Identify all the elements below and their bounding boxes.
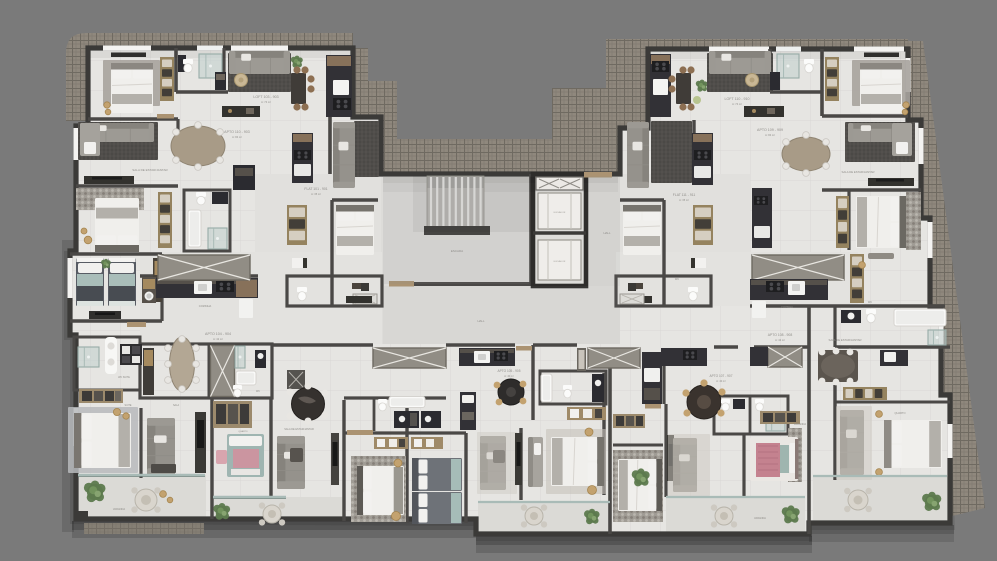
svg-text:APTO 110 - 903: APTO 110 - 903	[224, 130, 250, 134]
svg-text:FLAT 101 - 901: FLAT 101 - 901	[304, 187, 327, 191]
svg-text:A: 42 m²: A: 42 m²	[213, 337, 223, 341]
svg-text:A: 35 m²: A: 35 m²	[679, 198, 689, 202]
svg-text:A: 84 m²: A: 84 m²	[765, 133, 775, 137]
svg-text:WC SUITE: WC SUITE	[118, 376, 130, 379]
svg-text:SALA DE ESTAR/JANTAR: SALA DE ESTAR/JANTAR	[841, 170, 874, 174]
svg-text:FLAT 111 - 911: FLAT 111 - 911	[673, 193, 696, 197]
svg-text:A: 35 m²: A: 35 m²	[311, 192, 321, 196]
svg-text:WC: WC	[675, 278, 679, 281]
svg-text:WC: WC	[868, 301, 872, 304]
svg-text:QUARTO: QUARTO	[238, 430, 248, 433]
svg-text:WC: WC	[256, 390, 260, 393]
svg-text:APTO 107 - 907: APTO 107 - 907	[710, 374, 733, 378]
svg-text:A: 40 m²: A: 40 m²	[504, 375, 514, 378]
svg-text:ELEVADOR: ELEVADOR	[554, 260, 566, 263]
svg-text:ELEVADOR: ELEVADOR	[554, 211, 566, 214]
svg-text:SALA DE ESTAR/JANTAR: SALA DE ESTAR/JANTAR	[828, 338, 861, 342]
svg-text:APTO 105 - 905: APTO 105 - 905	[498, 369, 521, 373]
svg-text:LOFT 110 - 910: LOFT 110 - 910	[724, 97, 749, 101]
svg-text:VARANDA: VARANDA	[794, 422, 807, 426]
svg-text:LOFT 103 - 903: LOFT 103 - 903	[253, 95, 278, 99]
svg-text:A: 42 m²: A: 42 m²	[775, 338, 785, 342]
svg-text:A: 74 m²: A: 74 m²	[732, 102, 742, 106]
svg-text:HALL: HALL	[478, 319, 485, 323]
svg-text:A: 84 m²: A: 84 m²	[232, 135, 242, 139]
svg-text:A: 40 m²: A: 40 m²	[716, 380, 726, 383]
svg-text:QUARTO: QUARTO	[894, 411, 905, 415]
svg-text:APTO 104 - 904: APTO 104 - 904	[205, 332, 231, 336]
svg-text:SALA DE ESTAR/JANTAR: SALA DE ESTAR/JANTAR	[132, 168, 168, 172]
svg-text:COZINHA: COZINHA	[781, 305, 793, 309]
svg-text:SALA: SALA	[173, 404, 180, 407]
svg-text:SALA DE ESTAR/JANTAR: SALA DE ESTAR/JANTAR	[284, 428, 314, 431]
svg-text:VARANDA: VARANDA	[754, 517, 766, 520]
svg-text:APTO 108 - 908: APTO 108 - 908	[768, 333, 793, 337]
svg-text:VARANDA: VARANDA	[113, 507, 126, 511]
svg-text:COZINHA: COZINHA	[199, 304, 212, 308]
svg-text:HALL: HALL	[604, 231, 611, 235]
svg-text:A: 74 m²: A: 74 m²	[261, 100, 271, 104]
svg-text:SUITE: SUITE	[124, 404, 131, 407]
svg-text:APTO 109 - 909: APTO 109 - 909	[757, 128, 783, 132]
